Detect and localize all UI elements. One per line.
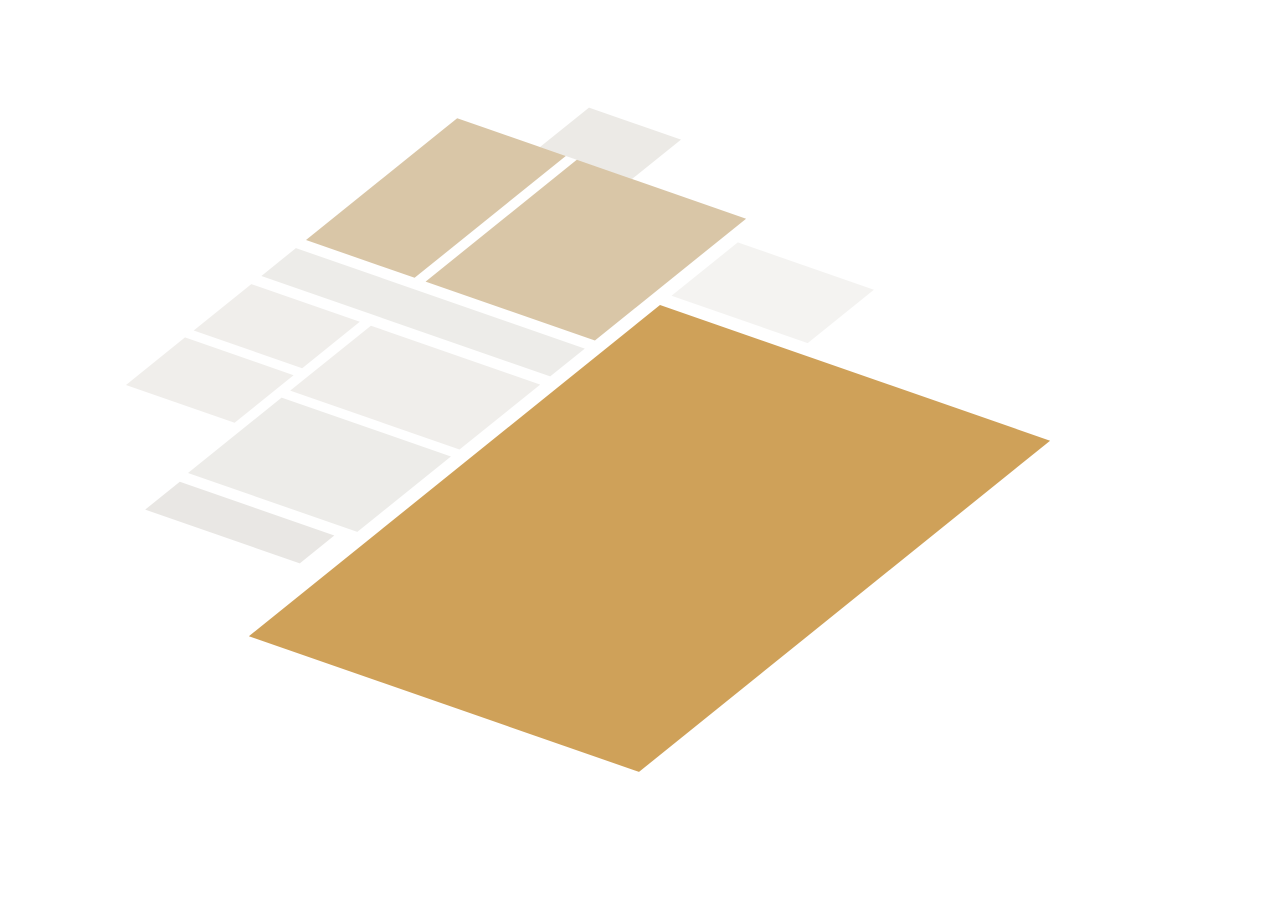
floorplan-3d-render (0, 0, 1272, 900)
floorplan-svg (0, 0, 1272, 900)
top-room-floor (540, 108, 681, 179)
